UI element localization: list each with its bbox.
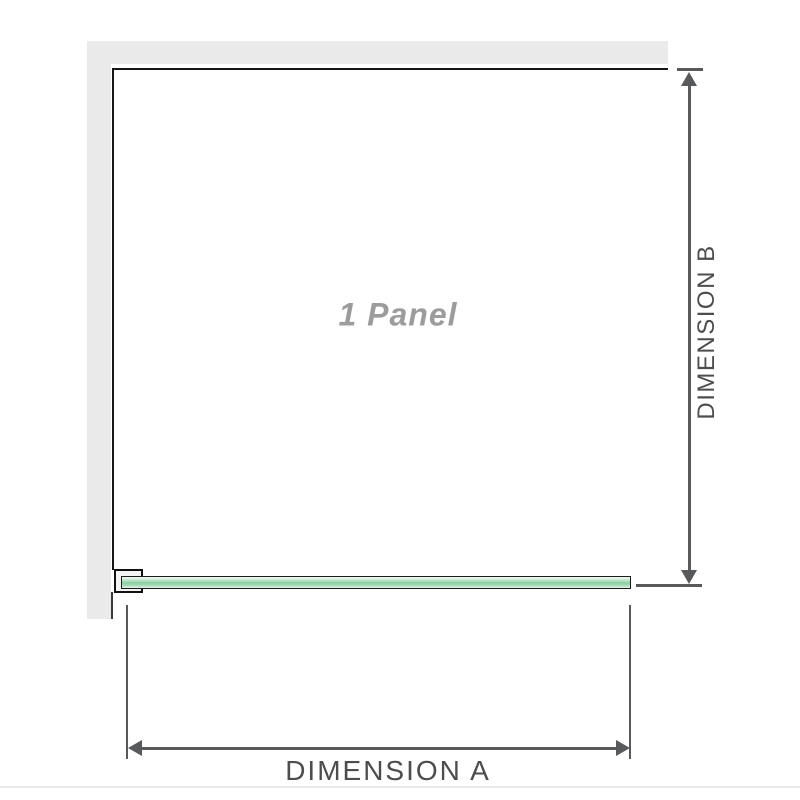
wall-left	[87, 41, 111, 619]
dimension-b-bottom-cap	[636, 584, 702, 587]
dimension-b-label: DIMENSION B	[693, 244, 721, 419]
panel-count-label: 1 Panel	[338, 297, 457, 334]
bottom-divider	[0, 786, 800, 788]
arrow-left-icon	[128, 740, 142, 756]
wall-edge-line	[111, 592, 113, 619]
wall-top	[87, 41, 668, 64]
dimension-b-line	[688, 76, 691, 574]
dimension-diagram: 1 Panel DIMENSION B DIMENSION A	[0, 0, 800, 800]
dimension-a-extension-right	[629, 605, 631, 759]
dimension-a-line	[138, 747, 620, 750]
arrow-down-icon	[681, 570, 697, 584]
glass-panel-bar	[121, 576, 631, 589]
panel-outline-left	[112, 68, 114, 570]
dimension-a-label: DIMENSION A	[285, 755, 491, 787]
dimension-a-extension-left	[126, 605, 128, 759]
arrow-right-icon	[616, 740, 630, 756]
arrow-up-icon	[681, 72, 697, 86]
panel-outline-top	[112, 68, 668, 70]
dimension-b-top-cap	[677, 68, 703, 71]
